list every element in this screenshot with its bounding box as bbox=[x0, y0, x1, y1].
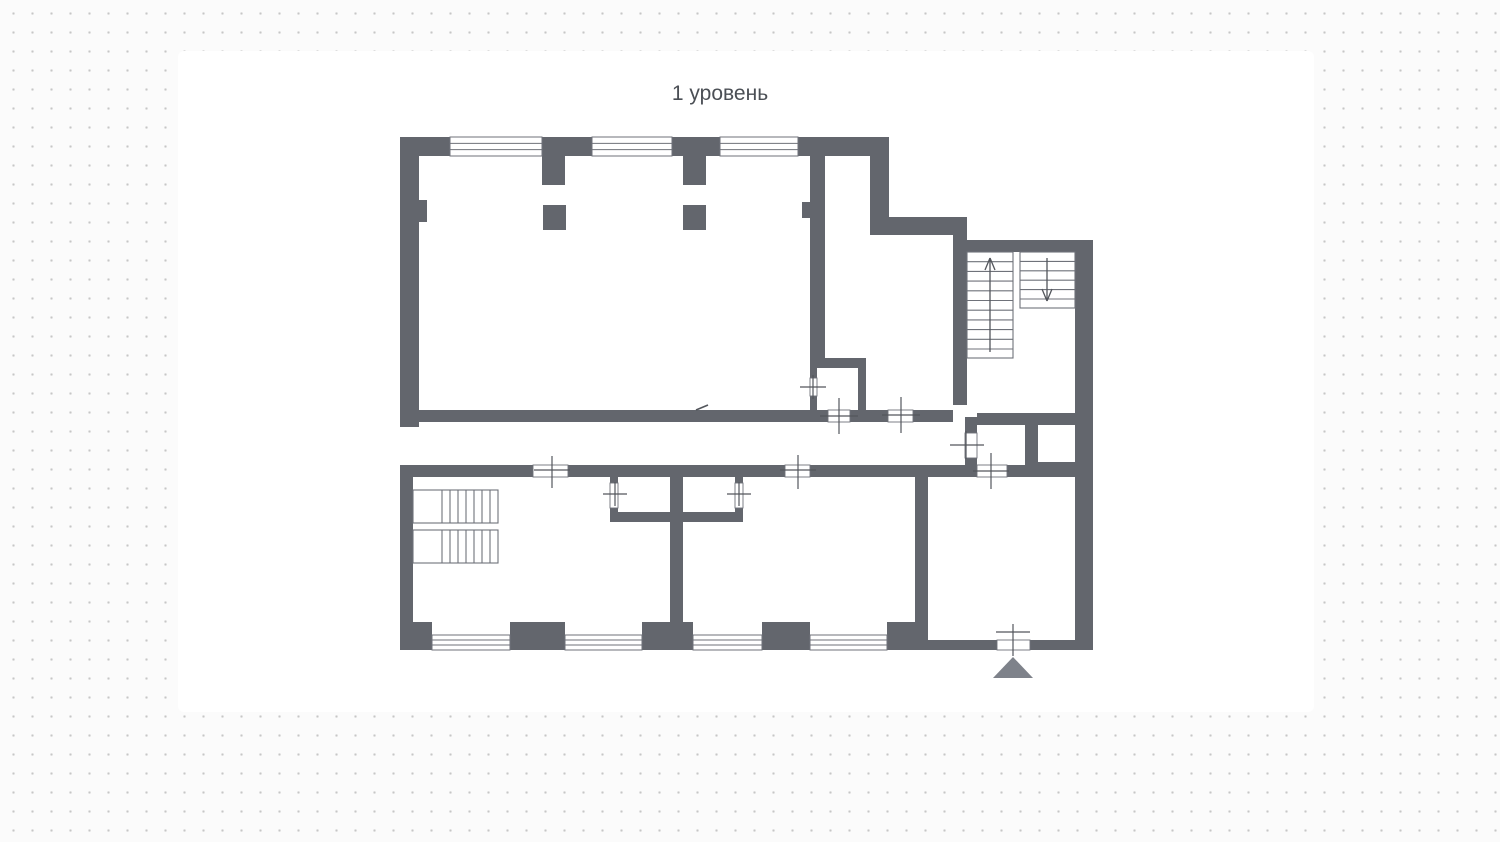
window bbox=[565, 635, 642, 650]
window bbox=[450, 137, 542, 156]
floor-plan-svg bbox=[0, 0, 1500, 842]
stair-direction-arrow-head bbox=[990, 258, 995, 270]
wall-segment bbox=[543, 205, 566, 230]
wall-segment bbox=[400, 622, 432, 650]
wall-segment bbox=[1030, 640, 1093, 650]
window bbox=[810, 635, 887, 650]
wall-segment bbox=[683, 156, 706, 185]
wall-segment bbox=[510, 622, 565, 650]
stairs-flight bbox=[413, 530, 498, 563]
wall-segment bbox=[802, 202, 810, 218]
wall-segment bbox=[1075, 240, 1093, 650]
wall-segment bbox=[419, 200, 427, 222]
wall-segment bbox=[610, 512, 743, 522]
wall-segment bbox=[762, 622, 810, 650]
wall-segment bbox=[977, 413, 1075, 425]
door-opening bbox=[610, 483, 618, 508]
wall-segment bbox=[735, 508, 743, 513]
wall-segment bbox=[642, 622, 693, 650]
wall-segment bbox=[928, 640, 997, 650]
wall-segment bbox=[955, 240, 1093, 252]
wall-segment bbox=[870, 217, 967, 235]
wall-segment bbox=[400, 465, 533, 477]
stair-direction-arrow-head bbox=[985, 258, 990, 270]
stairs-flight bbox=[413, 490, 498, 523]
wall-mark bbox=[696, 405, 708, 410]
wall-segment bbox=[810, 156, 825, 360]
wall-segment bbox=[1007, 465, 1090, 477]
window bbox=[720, 137, 798, 156]
wall-segment bbox=[953, 235, 967, 405]
window bbox=[592, 137, 672, 156]
window bbox=[693, 635, 762, 650]
wall-segment bbox=[400, 410, 828, 422]
wall-segment bbox=[683, 205, 706, 230]
wall-segment bbox=[887, 622, 928, 650]
wall-segment bbox=[798, 137, 889, 156]
wall-segment bbox=[400, 137, 419, 427]
app-background: { "title": "1 уровень", "canvas": { "bac… bbox=[0, 0, 1500, 842]
wall-segment bbox=[672, 137, 720, 156]
wall-segment bbox=[568, 465, 785, 477]
door-opening bbox=[533, 465, 568, 477]
wall-segment bbox=[810, 358, 866, 368]
wall-segment bbox=[670, 477, 683, 622]
wall-segment bbox=[913, 410, 953, 422]
wall-segment bbox=[610, 508, 618, 513]
wall-segment bbox=[542, 156, 565, 185]
entrance-marker bbox=[993, 657, 1033, 678]
wall-segment bbox=[542, 137, 592, 156]
wall-segment bbox=[915, 477, 928, 622]
window bbox=[432, 635, 510, 650]
wall-segment bbox=[858, 358, 866, 412]
wall-segment bbox=[810, 465, 977, 477]
wall-segment bbox=[965, 417, 977, 433]
wall-segment bbox=[610, 477, 618, 483]
